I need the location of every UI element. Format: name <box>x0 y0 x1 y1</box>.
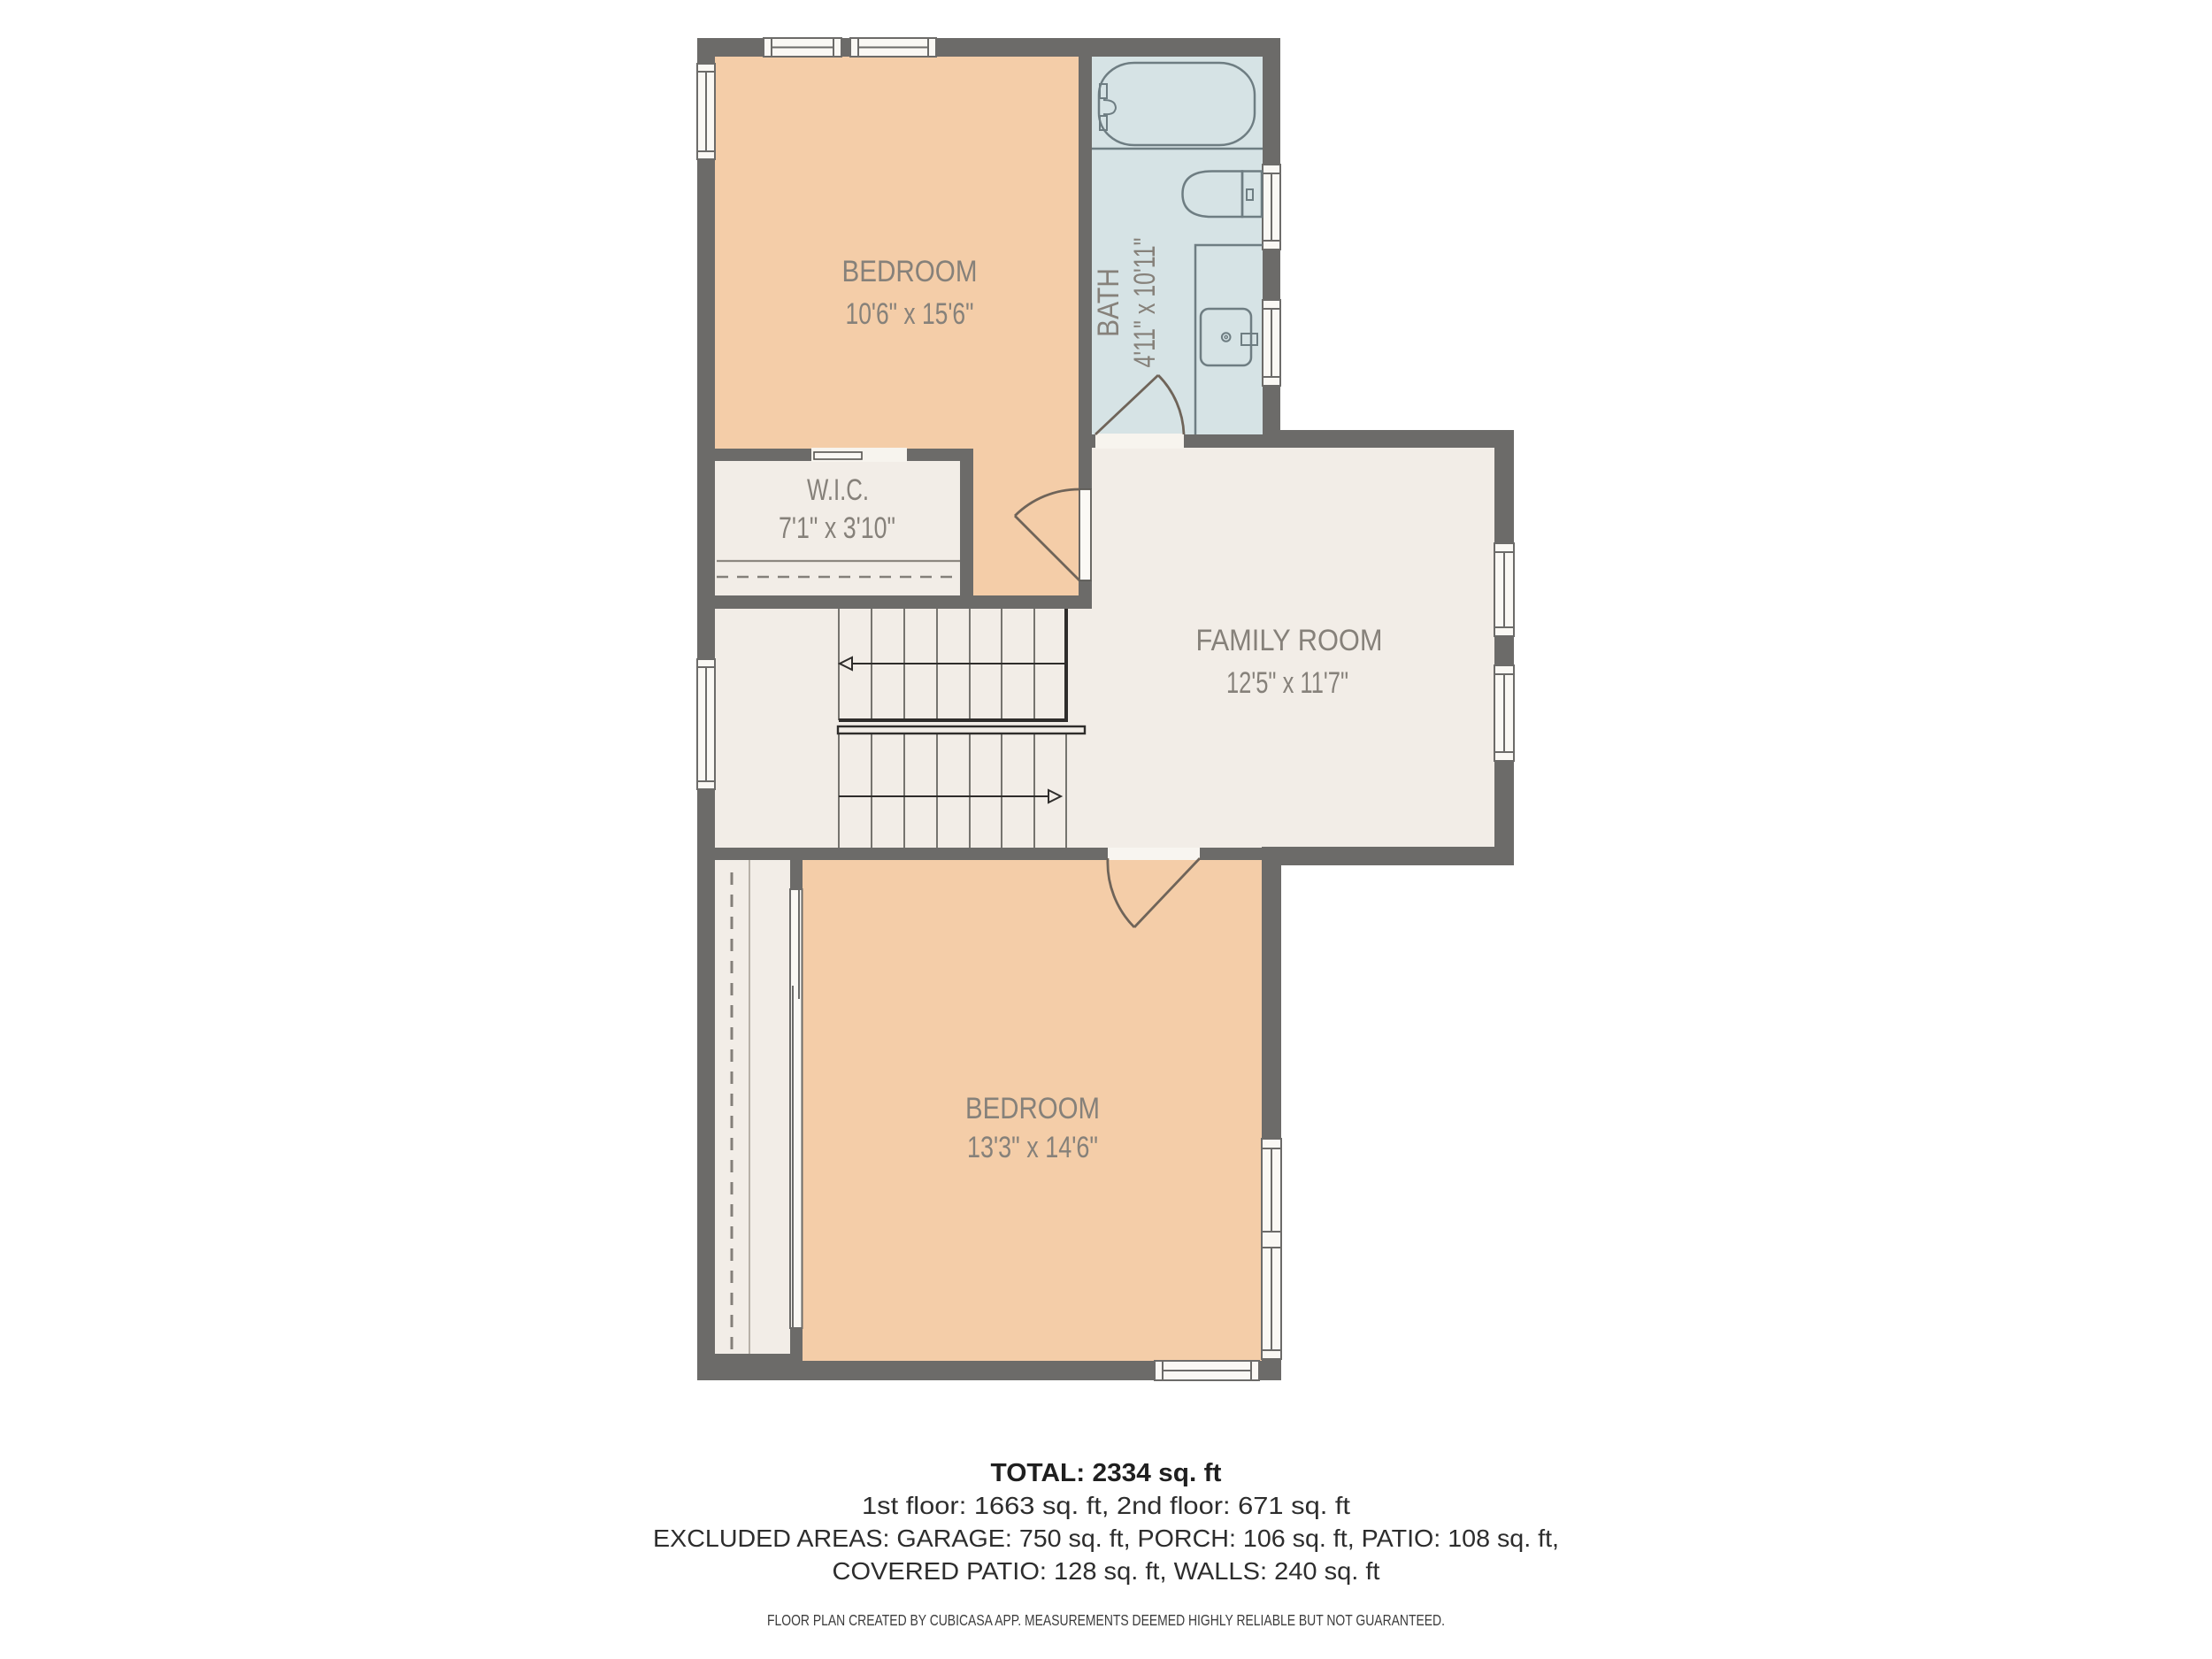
svg-text:10'6" x 15'6": 10'6" x 15'6" <box>846 297 974 331</box>
svg-text:4'11" x 10'11": 4'11" x 10'11" <box>1128 238 1162 368</box>
svg-text:EXCLUDED AREAS: GARAGE: 750 sq: EXCLUDED AREAS: GARAGE: 750 sq. ft, PORC… <box>653 1525 1559 1552</box>
svg-text:12'5" x 11'7": 12'5" x 11'7" <box>1226 666 1348 700</box>
svg-text:13'3" x 14'6": 13'3" x 14'6" <box>967 1131 1098 1164</box>
svg-text:TOTAL: 2334 sq. ft: TOTAL: 2334 sq. ft <box>991 1459 1222 1487</box>
svg-text:BEDROOM: BEDROOM <box>965 1092 1100 1125</box>
svg-text:1st floor: 1663 sq. ft, 2nd fl: 1st floor: 1663 sq. ft, 2nd floor: 671 s… <box>862 1492 1350 1519</box>
svg-text:7'1" x 3'10": 7'1" x 3'10" <box>779 511 895 545</box>
svg-text:COVERED PATIO: 128 sq. ft, WAL: COVERED PATIO: 128 sq. ft, WALLS: 240 sq… <box>833 1557 1380 1585</box>
svg-text:FLOOR PLAN CREATED BY CUBICASA: FLOOR PLAN CREATED BY CUBICASA APP. MEAS… <box>767 1611 1445 1629</box>
svg-text:BEDROOM: BEDROOM <box>842 255 978 288</box>
svg-text:W.I.C.: W.I.C. <box>807 473 869 507</box>
svg-text:FAMILY ROOM: FAMILY ROOM <box>1196 624 1383 657</box>
svg-text:BATH: BATH <box>1092 268 1125 337</box>
